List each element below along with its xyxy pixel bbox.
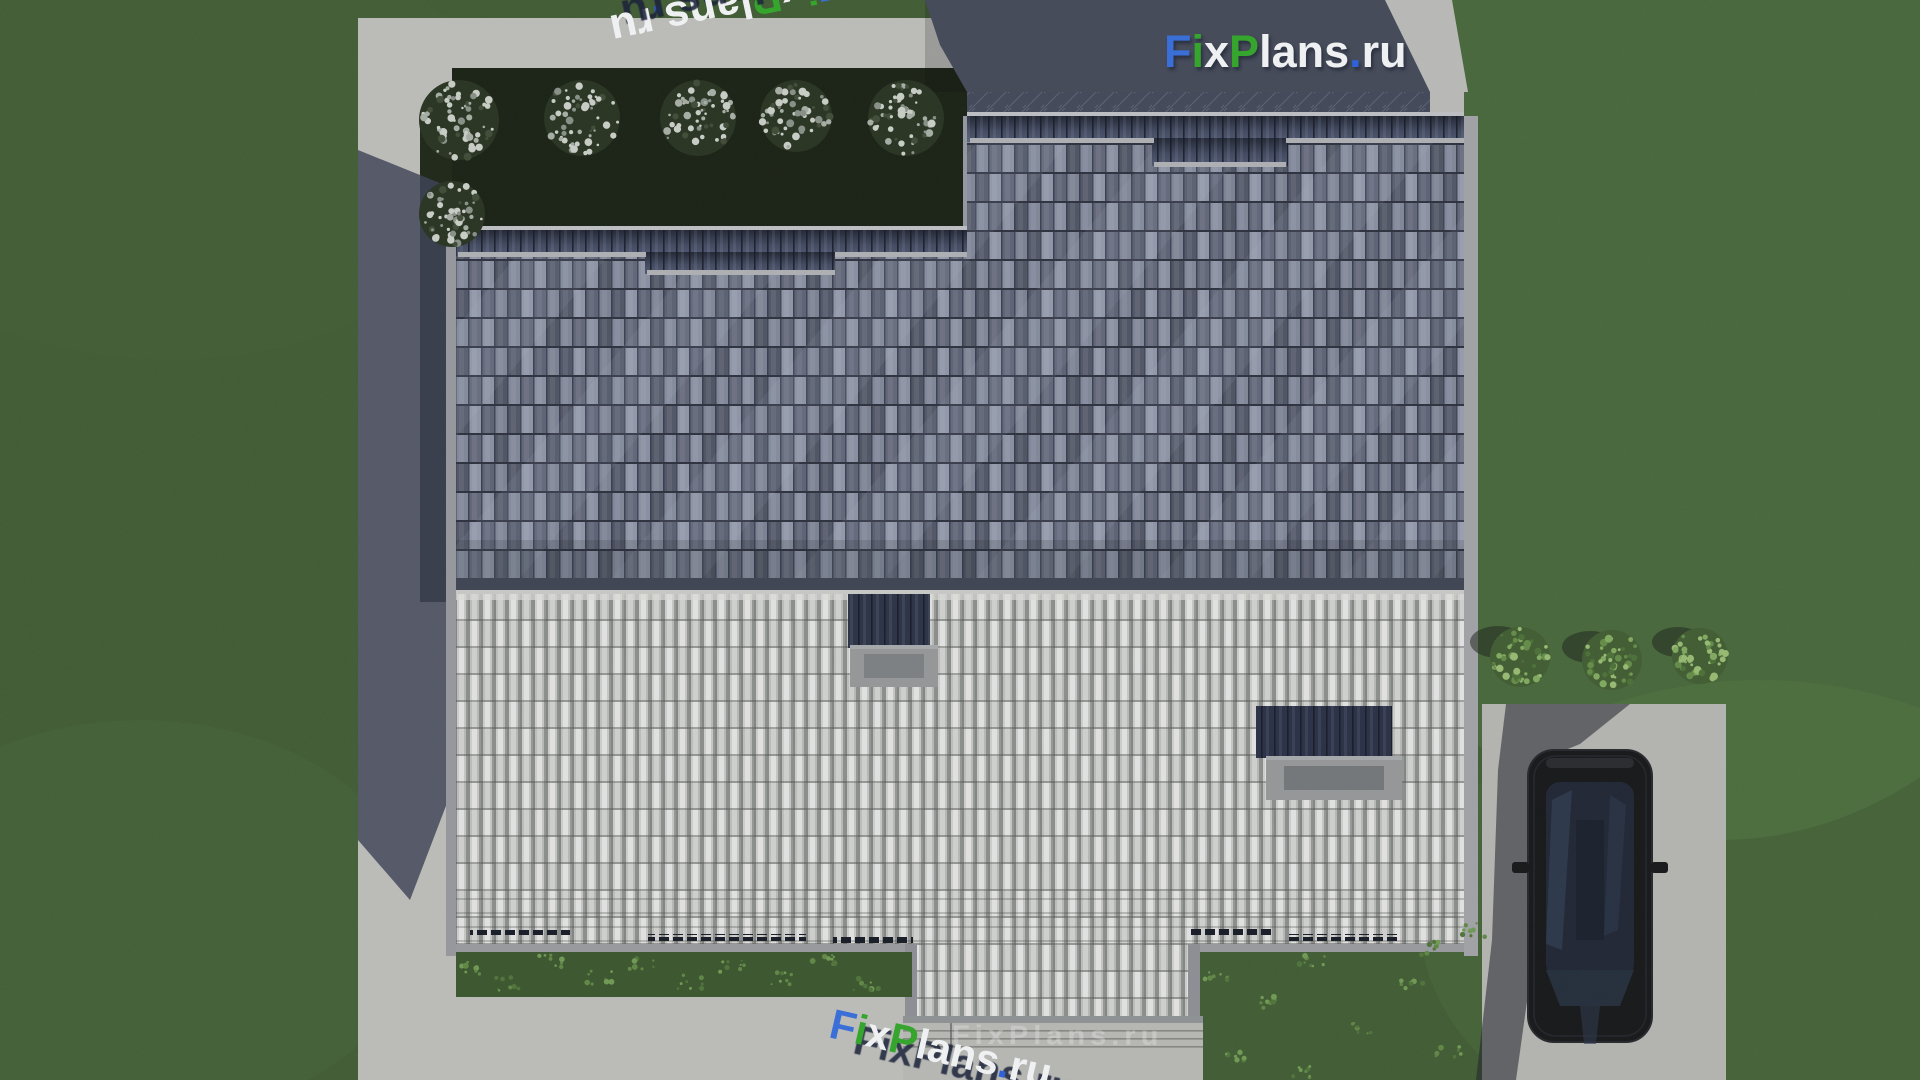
logo-letter: l bbox=[1259, 26, 1272, 77]
logo-letter: u bbox=[1379, 26, 1407, 77]
logo-letter: r bbox=[1362, 26, 1380, 77]
logo-letter: n bbox=[1297, 26, 1325, 77]
logo-letter: . bbox=[1349, 26, 1362, 77]
logo-letter: x bbox=[1204, 26, 1229, 77]
brand-logo: FixPlans.ru bbox=[1164, 26, 1407, 78]
logo-letter: P bbox=[1229, 26, 1259, 77]
logo-letter: s bbox=[1324, 26, 1349, 77]
logo-letter: i bbox=[1192, 26, 1205, 77]
logo-letter: a bbox=[1272, 26, 1297, 77]
logo-letter: F bbox=[1164, 26, 1192, 77]
aerial-house-render: FixPlans.ru FixPlans.ru FixPlans.ru FixP… bbox=[0, 0, 1920, 1080]
site-plan-render bbox=[0, 0, 1920, 1080]
